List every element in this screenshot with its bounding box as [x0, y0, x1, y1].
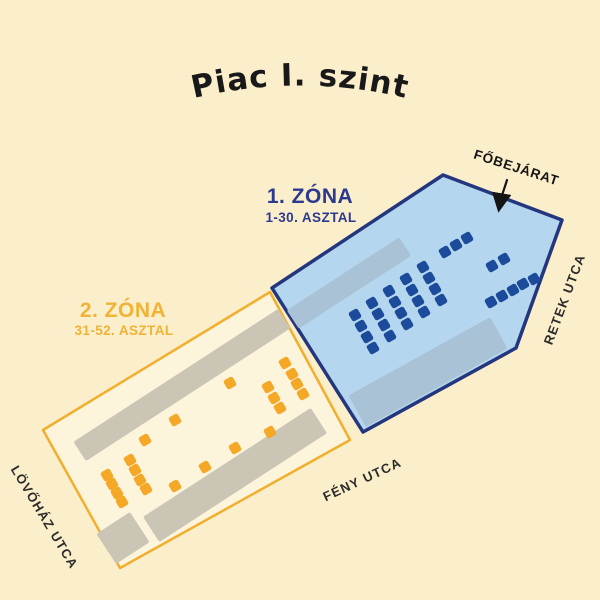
map-shapes-layer — [43, 175, 562, 568]
zone2-name-label: 2. ZÓNA — [80, 298, 166, 322]
entrance-label: FŐBEJÁRAT — [472, 147, 561, 189]
zone1-name-label: 1. ZÓNA — [267, 184, 353, 208]
street-label-feny-utca: FÉNY UTCA — [321, 455, 404, 505]
floor-plan-svg: Piac I. szint 1. ZÓNA 1-30. ASZTAL 2. ZÓ… — [0, 0, 600, 600]
zone1-range-label: 1-30. ASZTAL — [265, 210, 356, 225]
page-title: Piac I. szint — [188, 57, 413, 105]
street-label-retek-utca: RETEK UTCA — [541, 252, 589, 347]
market-floor-map: Piac I. szint 1. ZÓNA 1-30. ASZTAL 2. ZÓ… — [0, 0, 600, 600]
page-title-group: Piac I. szint — [188, 57, 413, 105]
zone2-range-label: 31-52. ASZTAL — [75, 323, 174, 338]
